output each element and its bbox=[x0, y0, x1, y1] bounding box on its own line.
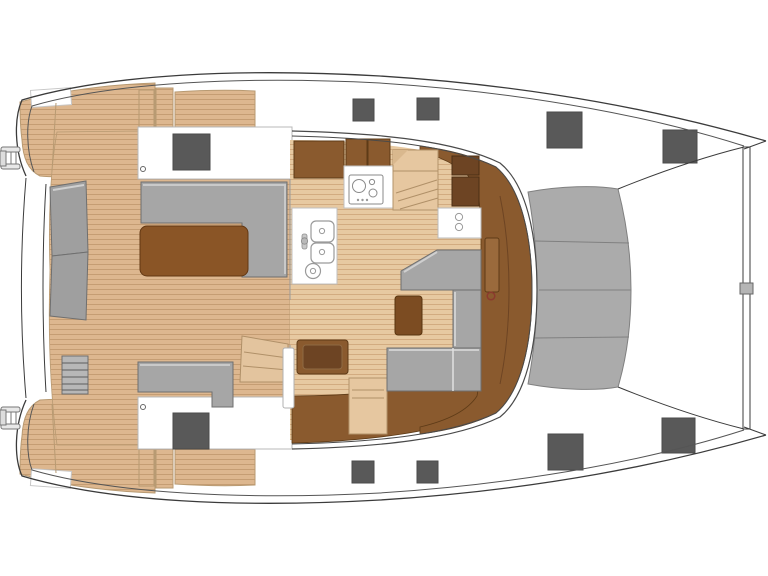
nav-seat bbox=[297, 340, 348, 374]
nav-counter-dial-1 bbox=[455, 213, 462, 220]
deck-hatch bbox=[173, 413, 209, 449]
port-swim-ladder bbox=[0, 407, 20, 429]
galley-stove bbox=[349, 175, 383, 204]
foredeck-trampoline bbox=[528, 187, 631, 390]
deck-hatch bbox=[548, 434, 583, 470]
deck-hatch bbox=[547, 112, 582, 148]
deck-hatch bbox=[173, 134, 210, 170]
galley-sink-unit bbox=[292, 208, 337, 284]
transom-bench-cushion-aft bbox=[50, 181, 88, 256]
port-bow-tip bbox=[744, 427, 766, 435]
deck-hatch bbox=[417, 98, 439, 120]
galley-cabinet-right bbox=[368, 139, 390, 166]
transom-outer-line bbox=[22, 178, 27, 398]
port-companionway bbox=[349, 378, 387, 434]
aft-cockpit bbox=[49, 127, 292, 449]
starboard-sidedeck-step-2 bbox=[156, 88, 173, 128]
port-deck-latch bbox=[141, 405, 146, 410]
sink-drain-1 bbox=[319, 228, 324, 233]
cockpit-table bbox=[140, 226, 248, 276]
port-sidedeck-step-2 bbox=[156, 448, 173, 488]
deck-hatch bbox=[663, 130, 697, 163]
stove-knob-3 bbox=[366, 199, 368, 201]
galley-cabinet-mid bbox=[346, 139, 367, 166]
nav-counter-dial-2 bbox=[455, 223, 462, 230]
deck-hatch bbox=[352, 461, 374, 483]
starboard-bow-tip bbox=[744, 141, 766, 149]
dinette-seat-side bbox=[453, 290, 481, 348]
trampoline-surface bbox=[528, 187, 631, 390]
cockpit-stair-down bbox=[62, 356, 88, 394]
stove-knob-2 bbox=[361, 199, 363, 201]
deck-hatch bbox=[417, 461, 438, 483]
cockpit-side-steps-port bbox=[240, 336, 288, 382]
deck-hatch bbox=[353, 99, 374, 121]
fridge-locker-lower bbox=[452, 177, 479, 206]
starboard-swim-ladder bbox=[0, 147, 20, 169]
deck-plan-svg bbox=[0, 0, 768, 576]
starboard-cabin-roof bbox=[138, 127, 292, 179]
starboard-companionway bbox=[393, 150, 438, 210]
stove-knob-1 bbox=[357, 199, 359, 201]
saloon-table bbox=[395, 296, 422, 335]
deck-hatch bbox=[662, 418, 695, 453]
port-sidedeck-step-1 bbox=[139, 448, 154, 486]
transom-inner-line bbox=[43, 184, 46, 392]
saloon bbox=[283, 139, 532, 443]
transom-bench-cushion-fwd bbox=[50, 252, 88, 320]
forward-door bbox=[485, 238, 499, 292]
round-basin-drain bbox=[310, 268, 315, 273]
starboard-sidedeck-teak bbox=[175, 90, 255, 127]
dinette-sofa bbox=[387, 348, 481, 391]
sink-faucet-knob bbox=[301, 238, 307, 244]
starboard-sidedeck-step-1 bbox=[139, 90, 154, 128]
sink-drain-2 bbox=[319, 249, 324, 254]
sliding-door-panel bbox=[283, 348, 294, 408]
port-sidedeck-teak bbox=[175, 449, 255, 486]
bow-crossbeam bbox=[740, 141, 766, 435]
starboard-deck-latch bbox=[141, 167, 146, 172]
bowsprit-fitting bbox=[740, 283, 753, 294]
deck-plan-stage bbox=[0, 0, 768, 576]
